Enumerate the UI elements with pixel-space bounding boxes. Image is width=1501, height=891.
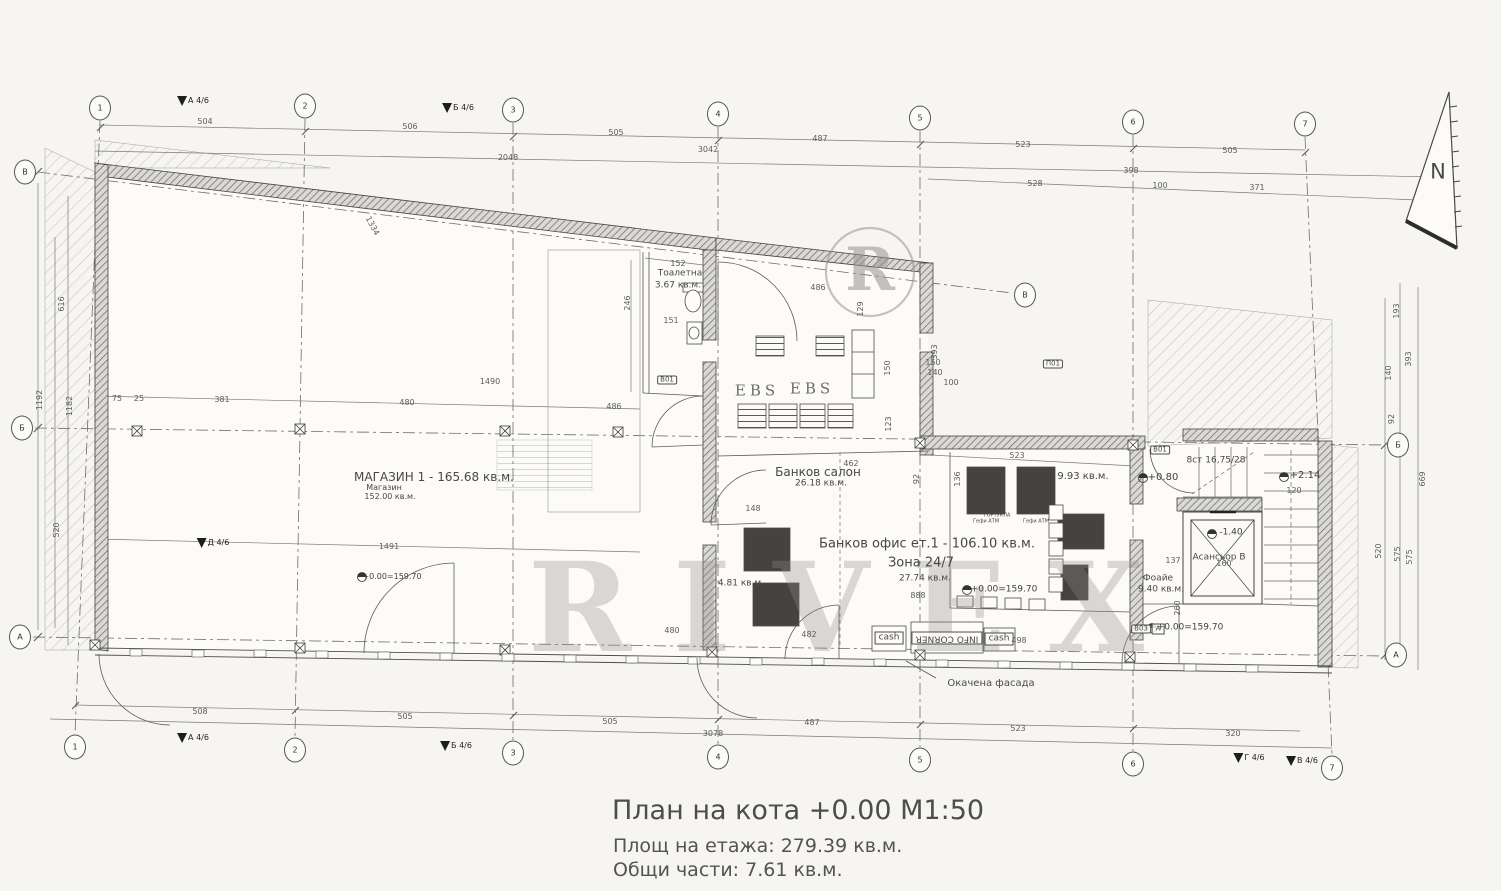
plan-title: План на кота +0.00 М1:50	[612, 795, 984, 826]
plan-floor-area: Площ на етажа: 279.39 кв.м.	[613, 835, 902, 857]
north-arrow	[1406, 92, 1462, 248]
watermark-text: RIVEX	[528, 536, 1186, 681]
floor-plan-canvas: RIVEX R 12345671234567ВБАБАВ А 4/6Б 4/6А…	[0, 0, 1501, 891]
plan-common-area: Общи части: 7.61 кв.м.	[613, 859, 843, 881]
elevator-shaft	[1183, 512, 1262, 604]
watermark-r-letter: R	[845, 235, 895, 305]
floor-plan-drawing	[0, 0, 1501, 891]
